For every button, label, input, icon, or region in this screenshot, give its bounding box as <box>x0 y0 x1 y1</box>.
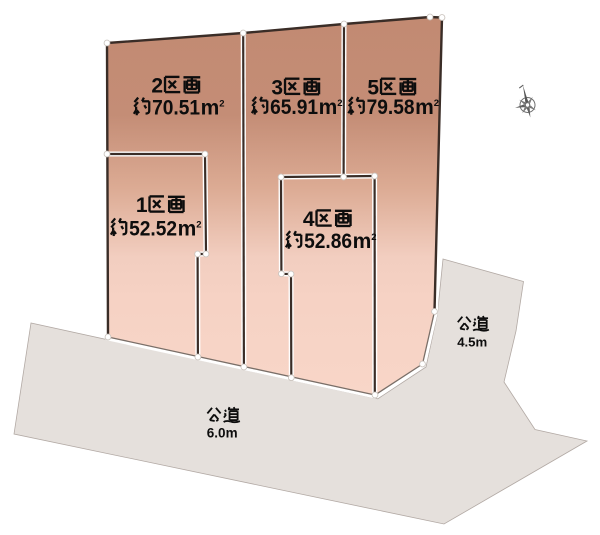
svg-text:6.0m: 6.0m <box>207 425 238 440</box>
svg-text:1: 1 <box>136 194 148 217</box>
svg-text:65.91: 65.91 <box>270 96 318 119</box>
svg-text:52.52: 52.52 <box>129 217 177 240</box>
svg-text:70.51: 70.51 <box>152 97 200 120</box>
svg-text:79.58: 79.58 <box>367 96 415 119</box>
svg-text:52.86: 52.86 <box>304 230 352 253</box>
svg-text:4.5m: 4.5m <box>457 335 487 350</box>
svg-text:2: 2 <box>151 75 163 98</box>
svg-text:4: 4 <box>303 208 315 231</box>
